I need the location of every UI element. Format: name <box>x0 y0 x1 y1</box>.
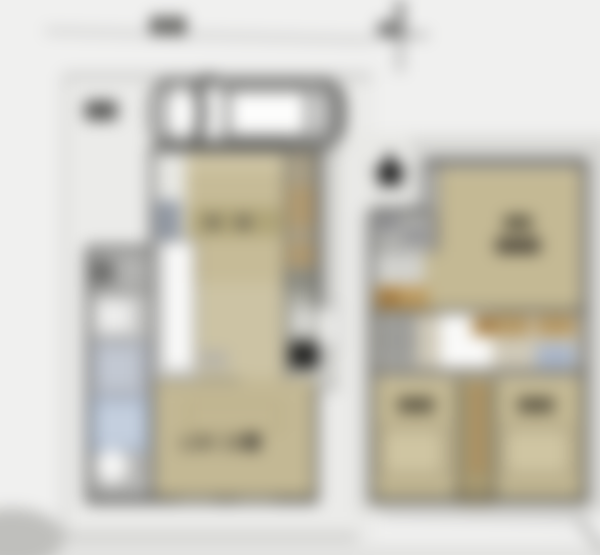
svg-text:LDK 16: LDK 16 <box>180 433 242 453</box>
